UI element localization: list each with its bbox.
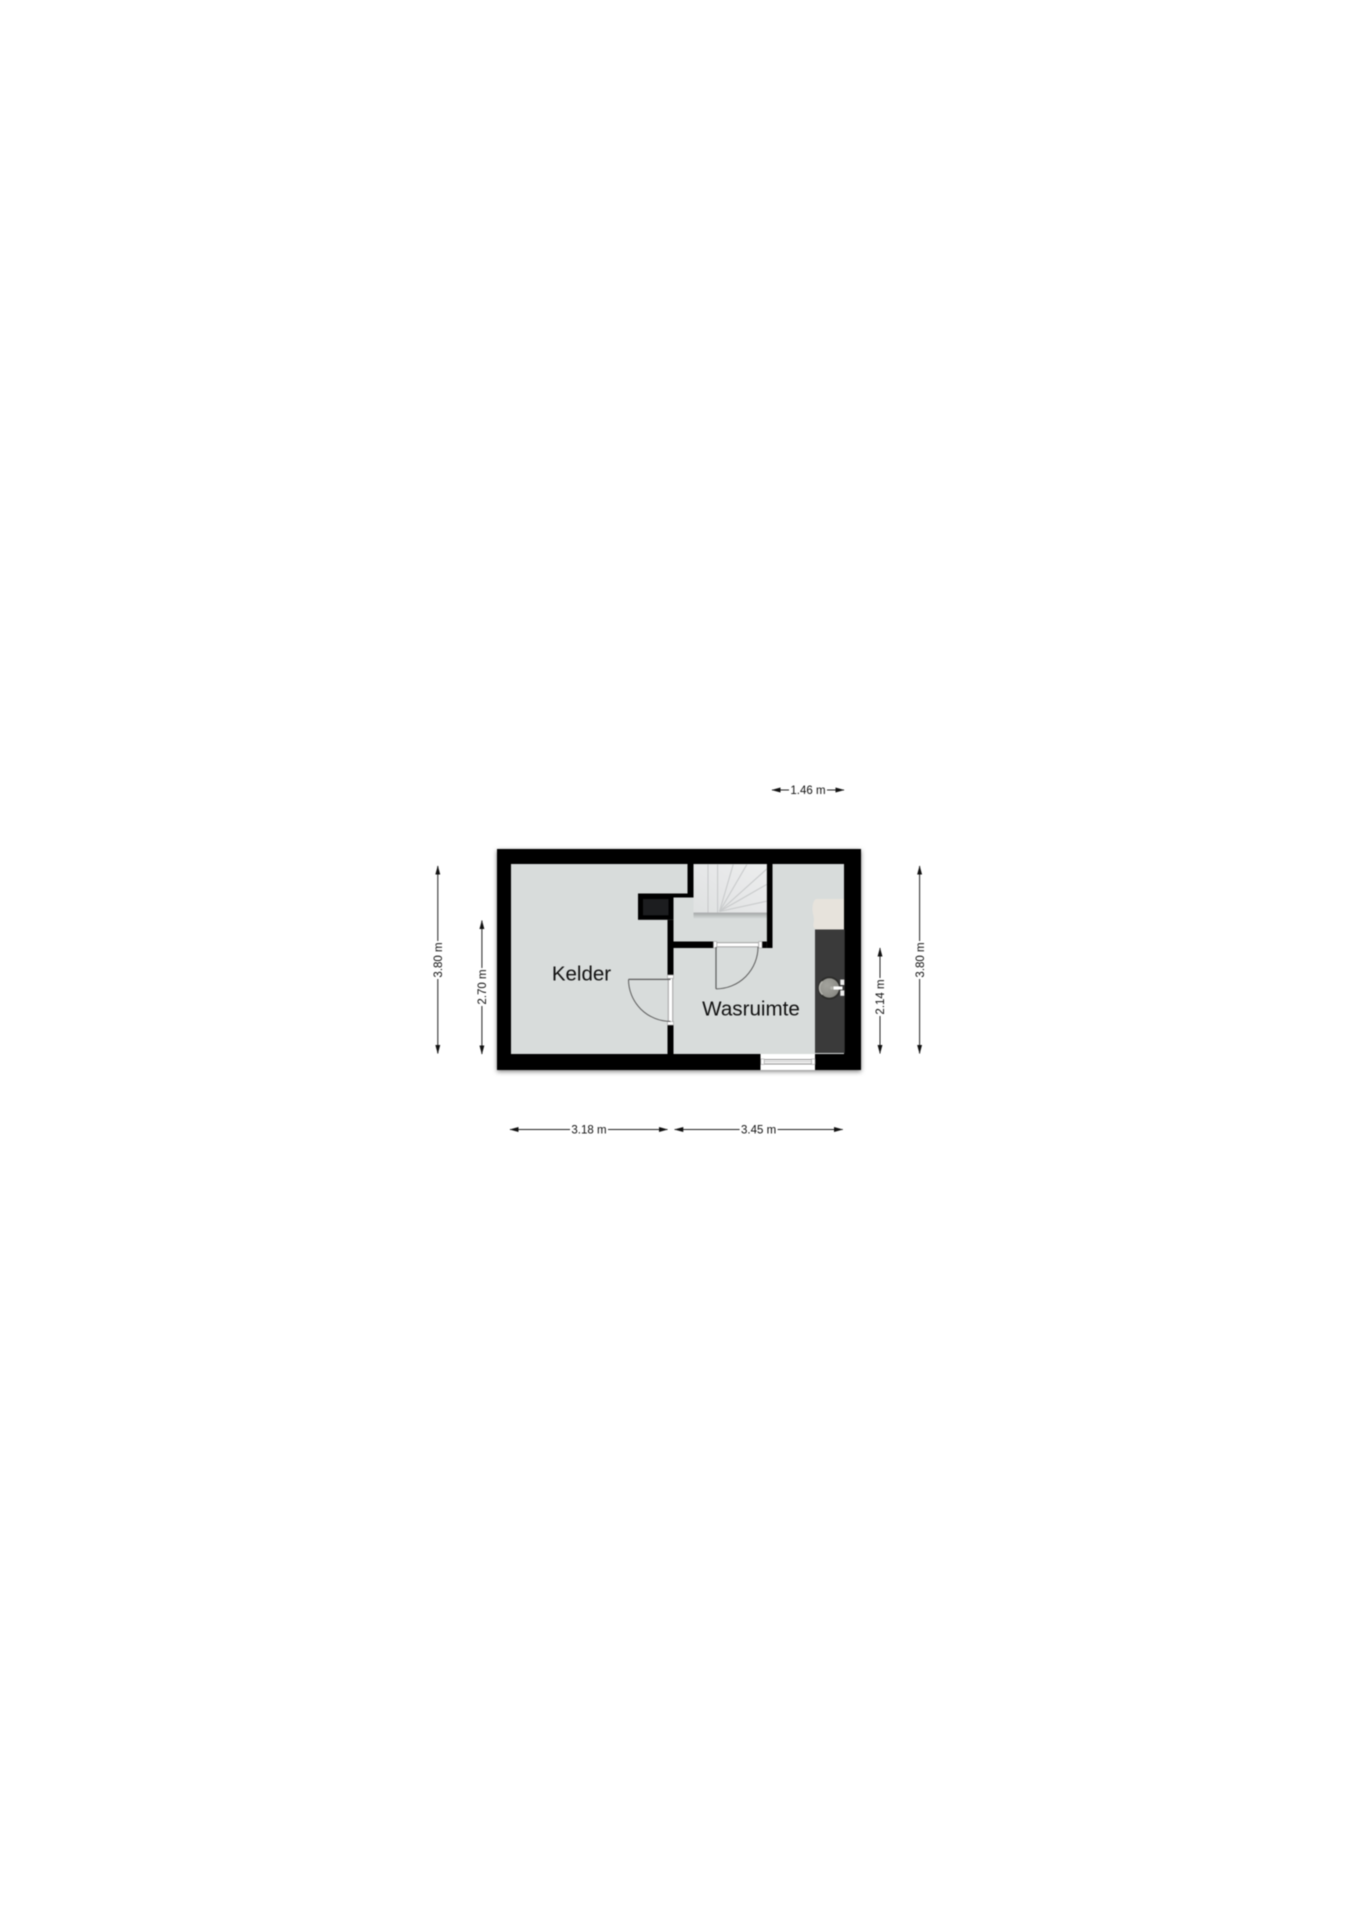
svg-text:3.80 m: 3.80 m — [915, 942, 927, 977]
svg-text:Kelder: Kelder — [552, 963, 611, 986]
svg-text:2.14 m: 2.14 m — [875, 979, 887, 1014]
svg-text:2.70 m: 2.70 m — [477, 969, 489, 1004]
svg-text:3.45 m: 3.45 m — [741, 1125, 776, 1137]
svg-text:1.46 m: 1.46 m — [790, 785, 825, 797]
svg-text:3.18 m: 3.18 m — [571, 1125, 606, 1137]
svg-text:Wasruimte: Wasruimte — [702, 998, 800, 1021]
svg-text:3.80 m: 3.80 m — [433, 942, 445, 977]
